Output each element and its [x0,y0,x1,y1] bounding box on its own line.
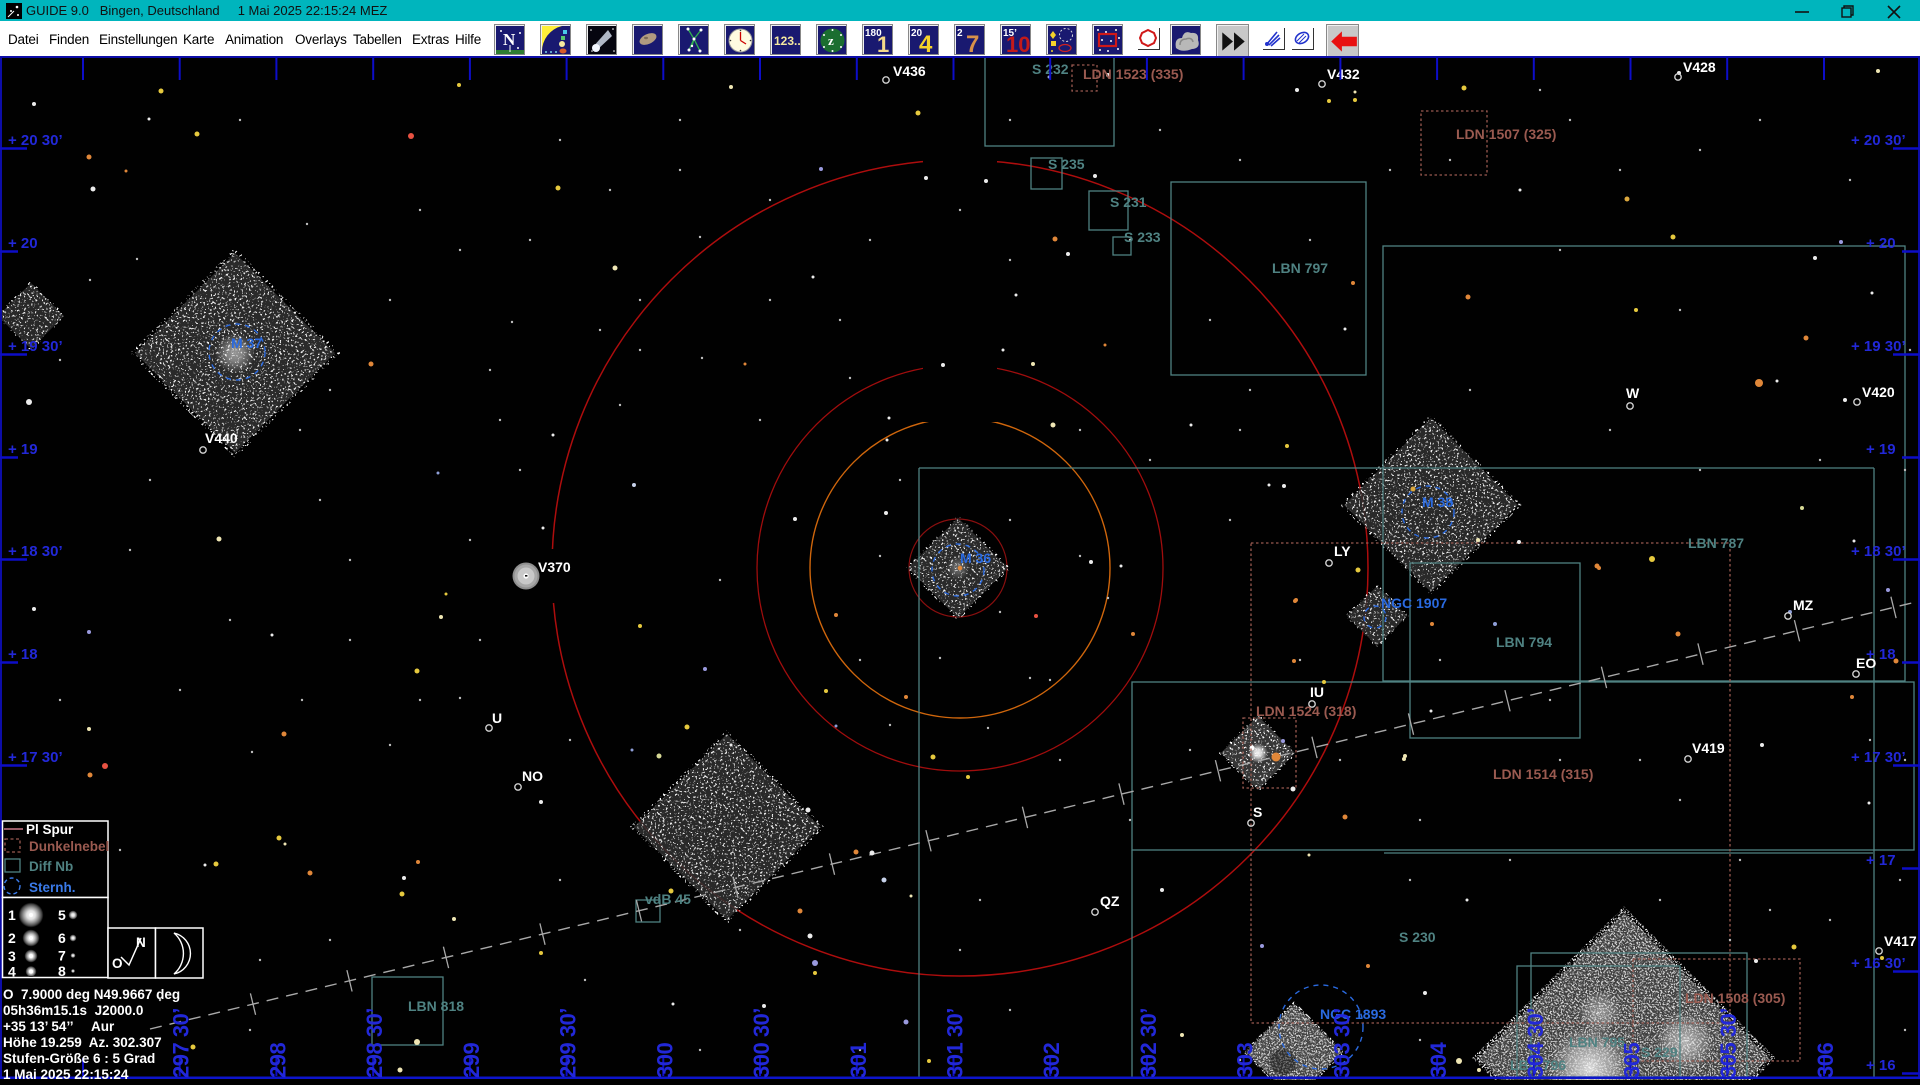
svg-text:+ 16 30’: + 16 30’ [1851,955,1906,972]
svg-text:304 30’: 304 30’ [1523,1008,1548,1078]
svg-text:301 30’: 301 30’ [943,1008,968,1078]
svg-text:S 231: S 231 [1110,194,1147,210]
svg-text:S 229: S 229 [1641,1044,1678,1060]
svg-text:LBN 794: LBN 794 [1496,634,1552,650]
svg-text:QZ: QZ [1100,893,1120,909]
svg-text:+ 17: + 17 [1866,852,1896,869]
svg-text:303 30’: 303 30’ [1329,1008,1354,1078]
svg-text:LBN 797: LBN 797 [1272,260,1328,276]
svg-text:M 36: M 36 [960,550,991,566]
svg-text:+ 20 30’: + 20 30’ [8,132,63,149]
svg-text:+ 20: + 20 [8,235,38,252]
svg-text:V436: V436 [893,63,926,79]
svg-text:123..: 123.. [774,34,801,48]
svg-text:Höhe 19.259 Az. 302.307: Höhe 19.259 Az. 302.307 [3,1035,162,1050]
svg-text:+ 18: + 18 [1866,646,1896,663]
svg-text:Stufen-Größe 6 : 5 Grad: Stufen-Größe 6 : 5 Grad [3,1051,155,1066]
svg-text:297 30’: 297 30’ [169,1008,194,1078]
svg-text:W: W [1626,385,1640,401]
svg-text:302: 302 [1039,1043,1064,1078]
svg-text:+ 18 30’: + 18 30’ [8,543,63,560]
svg-text:LDN 1508 (305): LDN 1508 (305) [1685,990,1785,1006]
svg-text:+ 19 30’: + 19 30’ [1851,338,1906,355]
svg-text:NO: NO [522,768,543,784]
svg-text:Pl Spur: Pl Spur [26,822,74,837]
svg-text:6: 6 [58,930,66,946]
svg-text:298 30’: 298 30’ [362,1008,387,1078]
svg-text:4: 4 [919,31,933,55]
svg-text:5: 5 [58,907,66,923]
svg-text:V440: V440 [205,430,238,446]
svg-text:+ 18: + 18 [8,646,38,663]
svg-text:+ 18 30’: + 18 30’ [1851,543,1906,560]
svg-text:300: 300 [652,1043,677,1078]
svg-text:+35 13’ 54’’ Aur: +35 13’ 54’’ Aur [3,1019,115,1034]
svg-text:S 230: S 230 [1399,929,1436,945]
svg-text:+ 20: + 20 [1866,235,1896,252]
svg-text:+ 19: + 19 [8,441,38,458]
svg-text:Sternh.: Sternh. [29,880,76,895]
svg-text:LBN 787: LBN 787 [1688,535,1744,551]
svg-text:V419: V419 [1692,740,1725,756]
svg-text:V417: V417 [1884,933,1917,949]
svg-text:V428: V428 [1683,59,1716,75]
svg-text:298: 298 [265,1043,290,1078]
svg-text:299 30’: 299 30’ [556,1008,581,1078]
svg-text:300 30’: 300 30’ [749,1008,774,1078]
svg-text:Diff Nb: Diff Nb [29,859,73,874]
svg-text:vdB 45: vdB 45 [645,891,691,907]
svg-text:+ 16: + 16 [1866,1057,1896,1074]
svg-text:LBN 795: LBN 795 [1569,1034,1625,1050]
svg-text:M 37: M 37 [231,335,262,351]
svg-text:303: 303 [1233,1043,1258,1078]
svg-text:1 Mai 2025 22:15:24: 1 Mai 2025 22:15:24 [3,1067,129,1080]
svg-text:3: 3 [8,948,16,964]
svg-text:299: 299 [459,1043,484,1078]
svg-text:LDN 1507 (325): LDN 1507 (325) [1456,126,1556,142]
svg-text:IU: IU [1310,684,1324,700]
svg-text:2: 2 [957,28,963,39]
svg-text:1: 1 [877,32,889,55]
svg-text:7: 7 [966,31,979,55]
svg-text:301: 301 [846,1043,871,1078]
svg-text:+ 17 30’: + 17 30’ [8,749,63,766]
svg-text:V420: V420 [1862,384,1895,400]
svg-text:LDN 1514 (315): LDN 1514 (315) [1493,766,1593,782]
svg-text:+ 20 30’: + 20 30’ [1851,132,1906,149]
svg-text:305: 305 [1620,1043,1645,1078]
svg-text:S: S [1253,804,1262,820]
svg-text:+ 19: + 19 [1866,441,1896,458]
svg-text:O 7.9000 deg N49.9667 deg: O 7.9000 deg N49.9667 deg [3,987,180,1002]
svg-text:z: z [828,33,834,48]
svg-text:LDN 1523 (335): LDN 1523 (335) [1083,66,1183,82]
svg-text:+ 19 30’: + 19 30’ [8,338,63,355]
svg-text:MZ: MZ [1793,597,1814,613]
svg-text:U: U [492,710,502,726]
svg-text:306: 306 [1813,1043,1838,1078]
svg-text:LY: LY [1334,543,1351,559]
svg-text:7: 7 [58,948,66,964]
svg-text:4: 4 [8,964,16,980]
svg-text:1: 1 [8,907,16,923]
svg-text:8: 8 [58,963,66,979]
svg-text:10: 10 [1006,32,1030,55]
svg-text:2: 2 [8,930,16,946]
svg-text:304: 304 [1426,1042,1451,1078]
svg-text:305 30’: 305 30’ [1716,1008,1741,1078]
svg-text:V432: V432 [1327,66,1360,82]
svg-text:LBN 818: LBN 818 [408,998,464,1014]
svg-text:302 30’: 302 30’ [1136,1008,1161,1078]
svg-text:M 38: M 38 [1422,494,1453,510]
svg-text:+ 17 30’: + 17 30’ [1851,749,1906,766]
svg-text:Dunkelnebel: Dunkelnebel [29,839,109,854]
svg-text:05h36m15.1s J2000.0: 05h36m15.1s J2000.0 [3,1003,143,1018]
svg-text:LDN 1524 (318): LDN 1524 (318) [1256,703,1356,719]
svg-text:S 235: S 235 [1048,156,1085,172]
svg-text:V370: V370 [538,559,571,575]
svg-text:NGC 1907: NGC 1907 [1381,595,1447,611]
svg-text:S 233: S 233 [1124,229,1161,245]
svg-text:O: O [112,956,123,971]
